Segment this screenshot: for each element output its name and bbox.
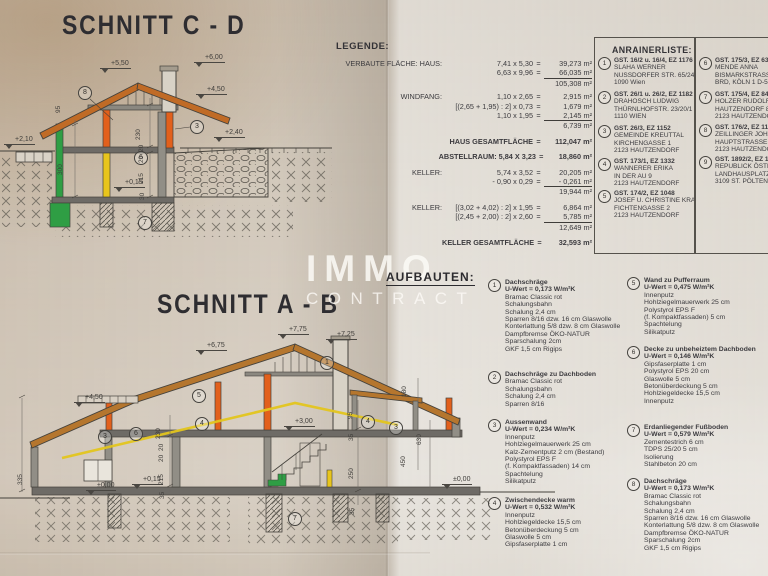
legend-row-equals: = [534, 238, 545, 247]
legend-row-value: 19,944 m² [544, 187, 592, 196]
legend-row-label [336, 238, 440, 247]
anrainer-title: ANRAINERLISTE: [612, 45, 692, 55]
legend-row: 105,308 m² [336, 79, 592, 88]
legend-row-value: 18,860 m² [546, 152, 592, 161]
legend-row-equals: = [536, 152, 546, 161]
legend-rows: VERBAUTE FLÄCHE: HAUS: 7,41 x 5,30 = 39,… [336, 59, 592, 248]
legend-row: WINDFANG: 1,10 x 2,65 = 2,915 m² [336, 92, 592, 101]
legend-row: 19,944 m² [336, 187, 592, 196]
legend-row-value: 39,273 m² [544, 59, 592, 68]
schnitt-ab-drawing [0, 336, 555, 547]
legend-row-equals [533, 79, 544, 88]
legend-row-label [336, 187, 442, 196]
legend-row-value: 6,864 m² [544, 203, 592, 212]
legend-row: ABSTELLRAUM: 5,84 X 3,23 = 18,860 m² [336, 152, 592, 161]
legend-row: KELLER: 5,74 x 3,52 = 20,205 m² [336, 168, 592, 177]
legend-title: LEGENDE: [336, 41, 592, 52]
legend-row-label: KELLER: [336, 203, 442, 212]
legend-row-expression: ABSTELLRAUM: 5,84 X 3,23 [437, 152, 536, 161]
legend-row: - 0,90 x 0,29 = - 0,261 m² [336, 177, 592, 187]
legend-row-equals [533, 187, 544, 196]
legend-section: LEGENDE: VERBAUTE FLÄCHE: HAUS: 7,41 x 5… [336, 41, 592, 248]
legend-row-expression: KELLER GESAMTFLÄCHE [440, 238, 534, 247]
legend-row-expression: HAUS GESAMTFLÄCHE [442, 137, 533, 146]
legend-row-equals: = [533, 168, 544, 177]
legend-row-expression: 5,74 x 3,52 [442, 168, 533, 177]
legend-row-equals: = [533, 59, 544, 68]
legend-row-label: WINDFANG: [336, 92, 442, 101]
legend-row: KELLER GESAMTFLÄCHE = 32,593 m² [336, 238, 592, 247]
legend-row-value: 2,915 m² [544, 92, 592, 101]
legend-row-expression [442, 79, 533, 88]
legend-row-value: 2,145 m² [544, 111, 592, 121]
legend-row-label [336, 68, 442, 78]
anrainer-table-divider [694, 37, 696, 253]
anrainer-table-border [594, 37, 768, 254]
legend-row-equals [533, 223, 544, 232]
legend-row-label [336, 152, 437, 161]
legend-row-expression: 1,10 x 2,65 [442, 92, 533, 101]
legend-row-equals: = [533, 111, 544, 121]
legend-row-expression: 6,63 x 9,96 [442, 68, 533, 78]
legend-row: KELLER: [(3,02 + 4,02) : 2] x 1,95 = 6,8… [336, 203, 592, 212]
legend-row-label: KELLER: [336, 168, 442, 177]
photographed-plan-sheet: { "titles": { "schnitt_cd": "SCHNITT C -… [0, 0, 768, 576]
legend-row-label: VERBAUTE FLÄCHE: HAUS: [336, 59, 442, 68]
schnitt-cd-drawing [0, 66, 332, 237]
legend-row-value: 5,785 m² [544, 212, 592, 222]
legend-row-expression: 1,10 x 1,95 [442, 111, 533, 121]
legend-row: 1,10 x 1,95 = 2,145 m² [336, 111, 592, 121]
legend-row-equals: = [533, 92, 544, 101]
legend-row-equals: = [533, 212, 544, 222]
legend-row-equals [533, 121, 544, 130]
legend-row-value: 112,047 m² [544, 137, 592, 146]
legend-row: 6,63 x 9,96 = 66,035 m² [336, 68, 592, 78]
legend-row-expression: [(2,65 + 1,95) : 2] x 0,73 [442, 102, 533, 111]
legend-row: 6,739 m² [336, 121, 592, 130]
legend-row-label [336, 223, 442, 232]
legend-row-equals: = [533, 68, 544, 78]
legend-row-expression [442, 223, 533, 232]
legend-row: VERBAUTE FLÄCHE: HAUS: 7,41 x 5,30 = 39,… [336, 59, 592, 68]
legend-row-equals: = [533, 203, 544, 212]
legend-row-value: 20,205 m² [544, 168, 592, 177]
legend-row-expression: 7,41 x 5,30 [442, 59, 533, 68]
legend-row-value: 66,035 m² [544, 68, 592, 78]
legend-row-label [336, 111, 442, 121]
legend-row-value: 6,739 m² [544, 121, 592, 130]
legend-row-expression: [(2,45 + 2,00) : 2] x 2,60 [442, 212, 533, 222]
legend-row-expression: [(3,02 + 4,02) : 2] x 1,95 [442, 203, 533, 212]
legend-row-label [336, 102, 442, 111]
legend-row: 12,649 m² [336, 223, 592, 232]
legend-row-value: 105,308 m² [544, 79, 592, 88]
legend-row-label [336, 177, 442, 187]
legend-row-label [336, 137, 442, 146]
legend-row-label [336, 121, 442, 130]
legend-row-value: 12,649 m² [544, 223, 592, 232]
legend-row-value: 1,679 m² [544, 102, 592, 111]
legend-row: HAUS GESAMTFLÄCHE = 112,047 m² [336, 137, 592, 146]
legend-row-expression: - 0,90 x 0,29 [442, 177, 533, 187]
legend-row-equals: = [533, 177, 544, 187]
legend-row: [(2,65 + 1,95) : 2] x 0,73 = 1,679 m² [336, 102, 592, 111]
legend-row-value: - 0,261 m² [544, 177, 592, 187]
legend-row-equals: = [533, 102, 544, 111]
aufbauten-title: AUFBAUTEN: [386, 270, 475, 286]
legend-row: [(2,45 + 2,00) : 2] x 2,60 = 5,785 m² [336, 212, 592, 222]
legend-row-label [336, 79, 442, 88]
legend-row-label [336, 212, 442, 222]
legend-row-value: 32,593 m² [545, 238, 592, 247]
legend-row-equals: = [533, 137, 544, 146]
legend-row-expression [442, 121, 533, 130]
legend-row-expression [442, 187, 533, 196]
